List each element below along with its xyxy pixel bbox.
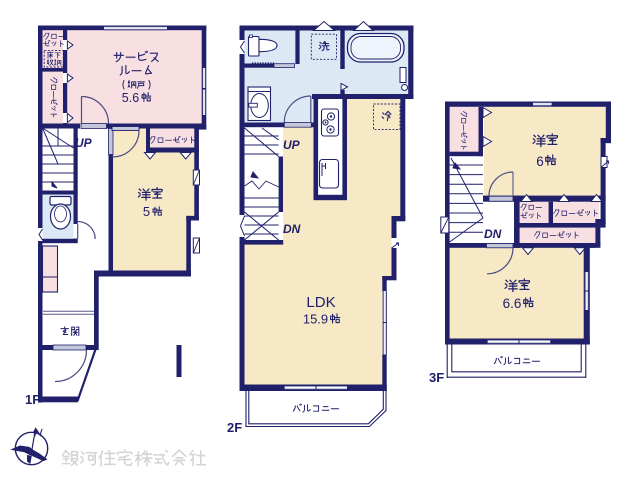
svg-text:DN: DN [484,227,502,241]
svg-text:UP: UP [75,136,93,150]
svg-text:1F: 1F [25,392,40,407]
svg-text:DN: DN [283,222,301,236]
svg-text:6.6: 6.6 [503,296,522,311]
svg-text:6: 6 [536,154,544,169]
svg-text:2F: 2F [227,420,242,435]
svg-text:5: 5 [143,204,150,219]
svg-text:3F: 3F [429,370,444,385]
svg-text:5.6: 5.6 [122,91,139,105]
svg-text:UP: UP [283,138,301,152]
svg-text:LDK: LDK [306,294,335,311]
svg-text:15.9: 15.9 [303,312,328,327]
